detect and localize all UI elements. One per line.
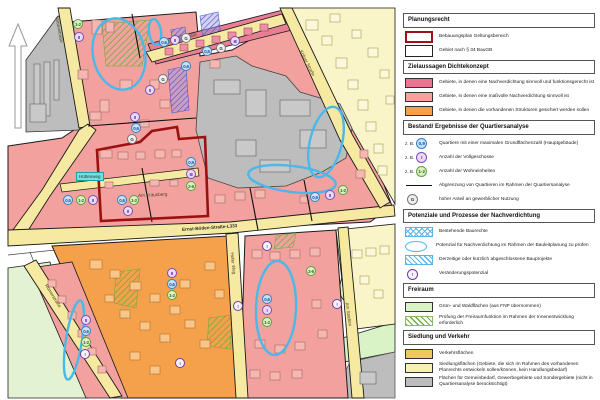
gewerbe-circle-icon: G: [407, 194, 418, 205]
map-marker-alert: !: [332, 299, 342, 309]
open-space-check-swatch: [405, 316, 433, 326]
map-marker-grz: 0,5: [63, 195, 73, 205]
legend-header: Zielaussagen Dichtekonzept: [403, 60, 595, 75]
map-marker-floors: II: [145, 85, 155, 95]
map-marker-units: 1-2: [262, 317, 272, 327]
potential-cloud-icon: [405, 241, 427, 252]
grz-circle-icon: 0,9: [416, 138, 427, 149]
map-marker-floors: I: [262, 305, 272, 315]
legend-item: Gebiete, in denen eine maßvolle Nachverd…: [405, 91, 595, 103]
legend-item: Potenzial für Nachverdichtung im Rahmen …: [405, 240, 595, 252]
storeys-circle-icon: I: [416, 152, 427, 163]
legend-item: Grün- und Waldflächen (aus FNP übernomme…: [405, 301, 595, 313]
legend-item: z. B.0,9 Quartiere mit einer maximalen G…: [405, 138, 595, 150]
densify-moderate-swatch: [405, 92, 433, 102]
map-marker-grz: 0,6: [131, 123, 141, 133]
map-marker-units: 2-6: [306, 266, 316, 276]
map-marker-floors: II: [81, 315, 91, 325]
densify-strong-swatch: [405, 78, 433, 88]
legend-item: Gebiete, in denen die vorhandenen Strukt…: [405, 105, 595, 117]
legend-section-bestand: Bestand/ Ergebnisse der Quartiersanalyse…: [403, 120, 595, 206]
map-marker-alert: !: [262, 241, 272, 251]
legend-item: z. B.1-2 Anzahl der Wohneinheiten: [405, 166, 595, 178]
green-space-swatch: [405, 302, 433, 312]
legend-item: Flächen für Gemeinbedarf, Gewerbegebiete…: [405, 376, 595, 388]
map-marker-grz: 0,6: [262, 294, 272, 304]
map-marker-grz: 0,9: [310, 192, 320, 202]
map-marker-floors: II: [74, 32, 84, 42]
alert-circle-icon: !: [407, 269, 418, 280]
map-marker-alert: !: [233, 301, 243, 311]
map-marker-floors: II: [170, 35, 180, 45]
legend-header: Siedlung und Verkehr: [403, 330, 595, 345]
map-marker-units: 1-2: [129, 195, 139, 205]
common-use-area-swatch: [405, 377, 433, 387]
map-marker-alert: !: [80, 349, 90, 359]
legend-item: G hoher Anteil an gewerblicher Nutzung: [405, 194, 595, 206]
legend-item: Bestehende Baurechte: [405, 226, 595, 238]
legend-item: Siedlungsflächen (Gebiete, die sich im R…: [405, 362, 595, 374]
legend-section-dichtekonzept: Zielaussagen Dichtekonzept Gebiete, in d…: [403, 60, 595, 118]
map-marker-floors: II: [123, 206, 133, 216]
map-marker-units: 1-2: [73, 19, 83, 29]
legend-header: Potenziale und Prozesse der Nachverdicht…: [403, 209, 595, 224]
map-marker-floors: III: [230, 36, 240, 46]
legend-item: Verkehrsflächen: [405, 348, 595, 360]
legend-section-planungsrecht: Planungsrecht Bebauungsplan Geltungsbere…: [403, 13, 595, 57]
map-marker-grz: 0,6: [117, 195, 127, 205]
quarter-boundary-line-icon: [406, 185, 432, 186]
legend-item: ! Veränderungspotenzial: [405, 268, 595, 280]
legend-item: z. B.I Anzahl der Vollgeschosse: [405, 152, 595, 164]
bplan-boundary-swatch: [405, 31, 433, 43]
par34-area-swatch: [405, 45, 433, 57]
map-marker-units: 2-6: [186, 181, 196, 191]
legend-item: Derzeitige oder kürzlich abgeschlossene …: [405, 254, 595, 266]
legend-header: Freiraum: [403, 283, 595, 298]
map-marker-floors: II: [167, 268, 177, 278]
legend-header: Bestand/ Ergebnisse der Quartiersanalyse: [403, 120, 595, 135]
dwellings-circle-icon: 1-2: [416, 166, 427, 177]
map-marker-gewerbe: G: [158, 74, 168, 84]
map-marker-floors: II: [88, 195, 98, 205]
city-plan-map: Hüttenstraße Kirchener Straße Kölner Str…: [0, 0, 398, 400]
legend-item: Gebiet nach § 34 BauGB: [405, 45, 595, 57]
preserve-structure-swatch: [405, 106, 433, 116]
legend-header: Planungsrecht: [403, 13, 595, 28]
legend-item: Gebiete, in denen eine Nachverdichtung s…: [405, 77, 595, 89]
legend-item: Bebauungsplan Geltungsbereich: [405, 31, 595, 43]
map-marker-grz: 0,6: [81, 326, 91, 336]
planning-map-page: { "colors":{ "cloud_blue":"#49B8EA","bou…: [0, 0, 600, 400]
map-marker-units: 1-2: [76, 195, 86, 205]
map-marker-units: 1-2: [81, 337, 91, 347]
traffic-area-swatch: [405, 349, 433, 359]
map-marker-grz: 0,9: [181, 61, 191, 71]
legend-item: Prüfung der Freiraumfunktion im Rahmen d…: [405, 315, 595, 327]
map-legend: Planungsrecht Bebauungsplan Geltungsbere…: [403, 13, 595, 391]
map-marker-grz: 0,5: [202, 46, 212, 56]
highlighted-street-label: Hüttenweg: [76, 172, 104, 181]
map-marker-gewerbe: G: [127, 134, 137, 144]
map-marker-floors: II: [130, 112, 140, 122]
legend-section-siedlung-verkehr: Siedlung und Verkehr Verkehrsflächen Sie…: [403, 330, 595, 388]
existing-building-rights-swatch: [405, 227, 433, 237]
map-marker-grz: 0,6: [167, 279, 177, 289]
map-marker-units: 1-2: [338, 185, 348, 195]
map-marker-grz: 0,6: [159, 37, 169, 47]
map-marker-gewerbe: G: [181, 33, 191, 43]
legend-item: Abgrenzung von Quartieren im Rahmen der …: [405, 180, 595, 192]
map-marker-gewerbe: G: [216, 43, 226, 53]
recent-construction-swatch: [405, 255, 433, 265]
map-marker-floors: II: [325, 190, 335, 200]
map-marker-grz: 0,9: [186, 157, 196, 167]
map-base-layers: [0, 0, 398, 400]
legend-section-freiraum: Freiraum Grün- und Waldflächen (aus FNP …: [403, 283, 595, 327]
map-marker-floors: III: [186, 169, 196, 179]
settlement-area-swatch: [405, 363, 433, 373]
map-marker-alert: !: [175, 358, 185, 368]
legend-section-potenziale: Potenziale und Prozesse der Nachverdicht…: [403, 209, 595, 281]
map-marker-units: 1-2: [167, 290, 177, 300]
